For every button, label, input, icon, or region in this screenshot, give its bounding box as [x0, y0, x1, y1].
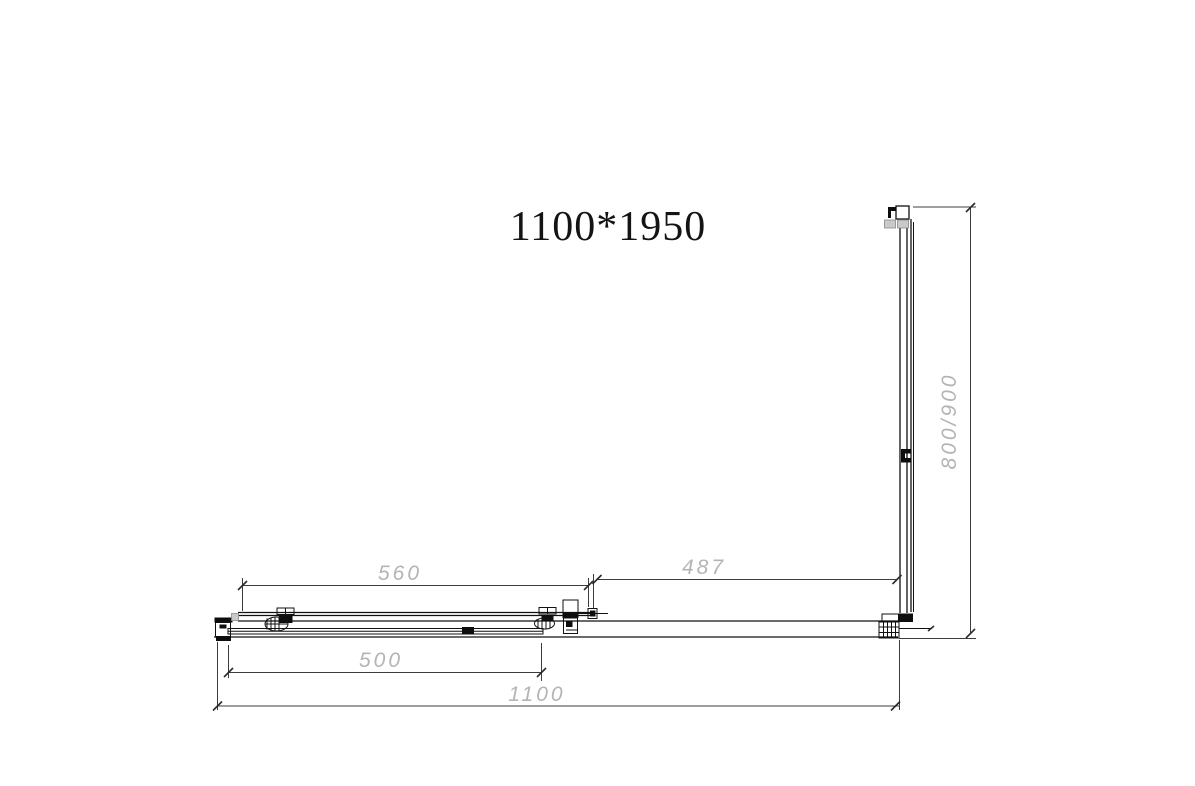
dimension-487: 487: [593, 556, 902, 608]
wall-profile-screw: [220, 625, 227, 629]
wall-profile-top-bar: [215, 618, 233, 623]
right-wall-profile: [879, 622, 934, 638]
technical-drawing-canvas: 1100*1950: [0, 0, 1195, 786]
clamp-block: [590, 611, 596, 617]
bottom-cap-block: [898, 614, 913, 623]
top-bracket-body: [896, 206, 909, 219]
shower-enclosure-plan-drawing: 1100*1950: [0, 0, 1195, 786]
side-panel-handle: [901, 449, 911, 463]
top-bracket-clamp: [888, 207, 896, 218]
dimension-label-800-900: 800/900: [938, 373, 961, 470]
top-bracket-pad: [898, 220, 909, 228]
roller-assembly-right: [535, 608, 557, 630]
dimension-label-560: 560: [378, 562, 422, 585]
door-handle: [462, 627, 474, 635]
dimension-500: 500: [224, 643, 546, 681]
dimension-label-500: 500: [359, 649, 403, 672]
wall-profile-bottom-bar: [216, 637, 231, 642]
dimension-label-487: 487: [682, 556, 726, 579]
drawing-title: 1100*1950: [510, 204, 706, 250]
post-upper-body: [563, 600, 578, 613]
dimension-560: 560: [238, 562, 593, 611]
wall-profile-pad: [232, 614, 239, 621]
opening-edge-clamp: [578, 609, 608, 619]
dimension-1100: 1100: [213, 640, 900, 711]
front-assembly: [214, 600, 934, 641]
dimension-label-1100: 1100: [508, 683, 565, 706]
top-bracket-pad: [885, 220, 896, 228]
post-inner-block: [566, 621, 573, 627]
side-panel-top-bracket: [885, 206, 910, 228]
post-black-band: [563, 613, 579, 619]
roller-assembly-left: [265, 608, 294, 631]
center-connector-post: [563, 600, 579, 634]
side-panel: [882, 206, 914, 622]
